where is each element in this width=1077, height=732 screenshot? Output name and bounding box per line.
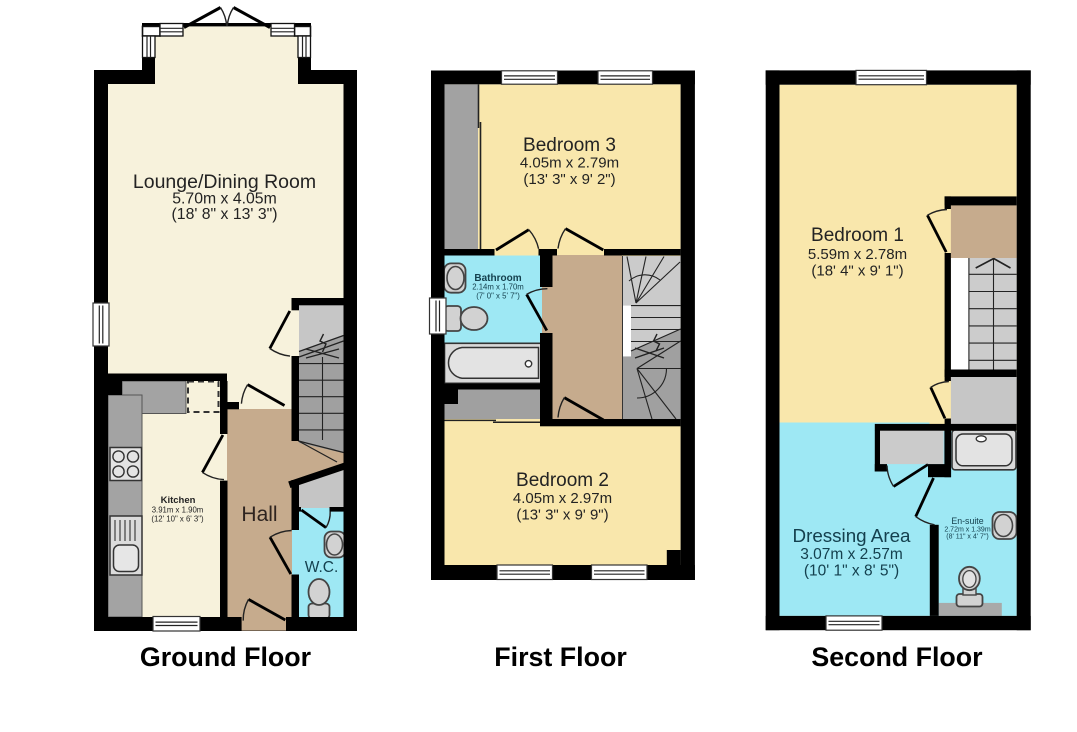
svg-text:(18' 4" x 9' 1"): (18' 4" x 9' 1") (811, 263, 903, 280)
svg-text:W.C.: W.C. (305, 559, 339, 576)
svg-text:Hall: Hall (241, 503, 277, 526)
svg-text:Bedroom 3: Bedroom 3 (523, 135, 616, 156)
svg-text:(13' 3" x 9' 9"): (13' 3" x 9' 9") (516, 507, 608, 524)
svg-text:5.59m x 2.78m: 5.59m x 2.78m (808, 246, 907, 263)
svg-text:2.72m x 1.39m: 2.72m x 1.39m (944, 527, 990, 534)
svg-text:3.07m x 2.57m: 3.07m x 2.57m (800, 546, 903, 563)
svg-text:Bedroom 2: Bedroom 2 (516, 470, 609, 491)
svg-text:Second Floor: Second Floor (811, 642, 983, 672)
svg-text:Ground Floor: Ground Floor (140, 642, 312, 672)
svg-text:Kitchen: Kitchen (161, 495, 196, 506)
svg-text:(10' 1" x 8' 5"): (10' 1" x 8' 5") (804, 563, 899, 580)
svg-text:2.14m x 1.70m: 2.14m x 1.70m (472, 283, 524, 292)
svg-text:(18' 8" x 13' 3"): (18' 8" x 13' 3") (172, 206, 278, 223)
svg-text:Dressing Area: Dressing Area (793, 525, 912, 546)
svg-text:4.05m x 2.97m: 4.05m x 2.97m (513, 490, 612, 507)
svg-text:En-suite: En-suite (951, 516, 983, 526)
svg-text:(12' 10" x 6' 3"): (12' 10" x 6' 3") (151, 515, 204, 524)
svg-text:(8' 11" x 4' 7"): (8' 11" x 4' 7") (946, 534, 989, 541)
svg-text:First Floor: First Floor (494, 642, 627, 672)
svg-text:4.05m x 2.79m: 4.05m x 2.79m (520, 155, 619, 172)
svg-text:Bedroom 1: Bedroom 1 (811, 225, 904, 246)
svg-text:(7' 0" x 5' 7"): (7' 0" x 5' 7") (476, 292, 520, 301)
svg-text:5.70m x 4.05m: 5.70m x 4.05m (172, 191, 277, 208)
svg-text:3.91m x 1.90m: 3.91m x 1.90m (152, 506, 204, 515)
svg-text:(13' 3" x 9' 2"): (13' 3" x 9' 2") (523, 171, 615, 188)
